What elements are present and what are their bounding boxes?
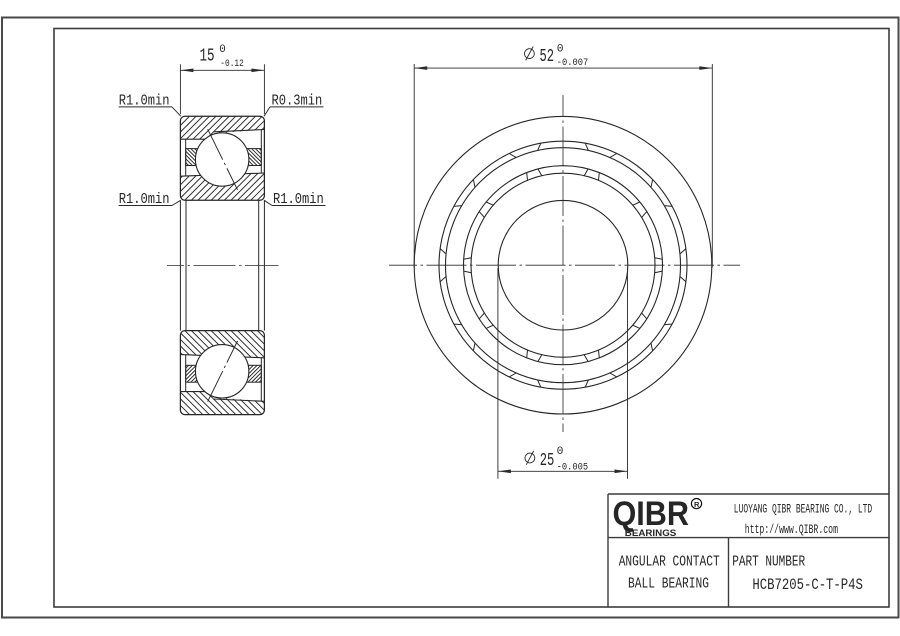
svg-text:R: R (694, 500, 700, 509)
svg-text:15: 15 (200, 47, 215, 67)
svg-text:BALL BEARING: BALL BEARING (628, 576, 709, 592)
svg-text:-0.007: -0.007 (557, 57, 589, 69)
svg-text:25: 25 (540, 450, 555, 471)
svg-text:HCB7205-C-T-P4S: HCB7205-C-T-P4S (752, 576, 863, 594)
svg-text:0: 0 (557, 446, 564, 458)
svg-text:0: 0 (557, 43, 564, 55)
svg-text:LUOYANG QIBR BEARING CO., LTD: LUOYANG QIBR BEARING CO., LTD (734, 503, 872, 517)
svg-text:52: 52 (540, 46, 555, 67)
svg-text:-0.12: -0.12 (220, 58, 244, 70)
svg-text:PART NUMBER: PART NUMBER (732, 555, 805, 571)
svg-text:ANGULAR CONTACT: ANGULAR CONTACT (619, 555, 720, 571)
svg-text:http://www.QIBR.com: http://www.QIBR.com (745, 523, 838, 537)
svg-text:0: 0 (219, 44, 226, 56)
svg-text:-0.005: -0.005 (557, 462, 589, 474)
svg-text:BEARINGS: BEARINGS (625, 528, 677, 539)
